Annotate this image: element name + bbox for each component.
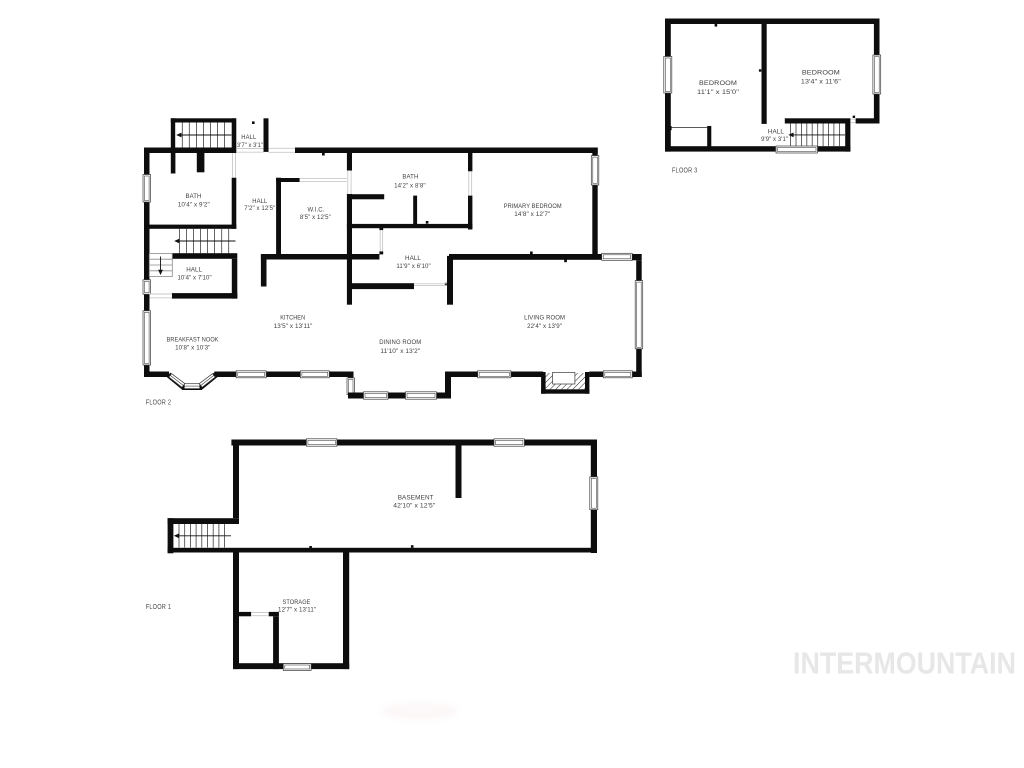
svg-text:FLOOR 1: FLOOR 1 [146,602,172,611]
svg-text:13'5" x 13'11": 13'5" x 13'11" [274,323,313,330]
svg-text:HALL: HALL [186,267,202,274]
svg-text:FLOOR 3: FLOOR 3 [672,165,698,174]
svg-text:10'4" x 9'2": 10'4" x 9'2" [178,201,211,208]
svg-text:KITCHEN: KITCHEN [280,314,305,321]
svg-text:12'7" x 13'11": 12'7" x 13'11" [278,606,317,613]
svg-text:14'8" x 12'7": 14'8" x 12'7" [514,211,551,218]
svg-text:BATH: BATH [402,173,418,180]
svg-text:BATH: BATH [186,193,202,200]
svg-text:11'9" x 6'10": 11'9" x 6'10" [396,263,431,270]
svg-text:8'5" x 12'5": 8'5" x 12'5" [300,214,332,221]
svg-text:HALL: HALL [252,198,267,205]
svg-text:HALL: HALL [241,134,256,141]
svg-text:13'4" x 11'6": 13'4" x 11'6" [801,79,842,86]
svg-text:10'4" x 7'10": 10'4" x 7'10" [177,274,212,281]
svg-text:14'2" x 8'8": 14'2" x 8'8" [394,182,426,189]
svg-text:10'8" x 10'3": 10'8" x 10'3" [175,345,211,352]
svg-text:22'4" x 13'9": 22'4" x 13'9" [527,323,563,330]
svg-text:11'10" x 13'2": 11'10" x 13'2" [380,348,420,355]
svg-text:BEDROOM: BEDROOM [802,70,840,77]
svg-text:BREAKFAST NOOK: BREAKFAST NOOK [167,336,219,343]
svg-text:STORAGE: STORAGE [283,599,311,606]
svg-text:W.I.C.: W.I.C. [308,206,325,213]
svg-text:3'7" x 3'1": 3'7" x 3'1" [237,142,263,149]
svg-text:9'9" x 3'1": 9'9" x 3'1" [761,136,788,143]
svg-text:BEDROOM: BEDROOM [699,80,737,87]
svg-text:7'2" x 12'5": 7'2" x 12'5" [244,205,276,212]
svg-text:11'1" x 15'0": 11'1" x 15'0" [697,89,740,96]
svg-text:HALL: HALL [768,129,784,136]
svg-text:INTERMOUNTAIN: INTERMOUNTAIN [793,647,1016,681]
svg-text:BASEMENT: BASEMENT [398,494,434,501]
svg-text:42'10" x 12'5": 42'10" x 12'5" [393,502,436,509]
svg-text:HALL: HALL [405,255,421,262]
svg-text:DINING ROOM: DINING ROOM [379,339,421,346]
svg-text:LIVING ROOM: LIVING ROOM [524,315,565,322]
svg-text:PRIMARY BEDROOM: PRIMARY BEDROOM [504,203,562,210]
svg-text:FLOOR 2: FLOOR 2 [146,398,172,407]
